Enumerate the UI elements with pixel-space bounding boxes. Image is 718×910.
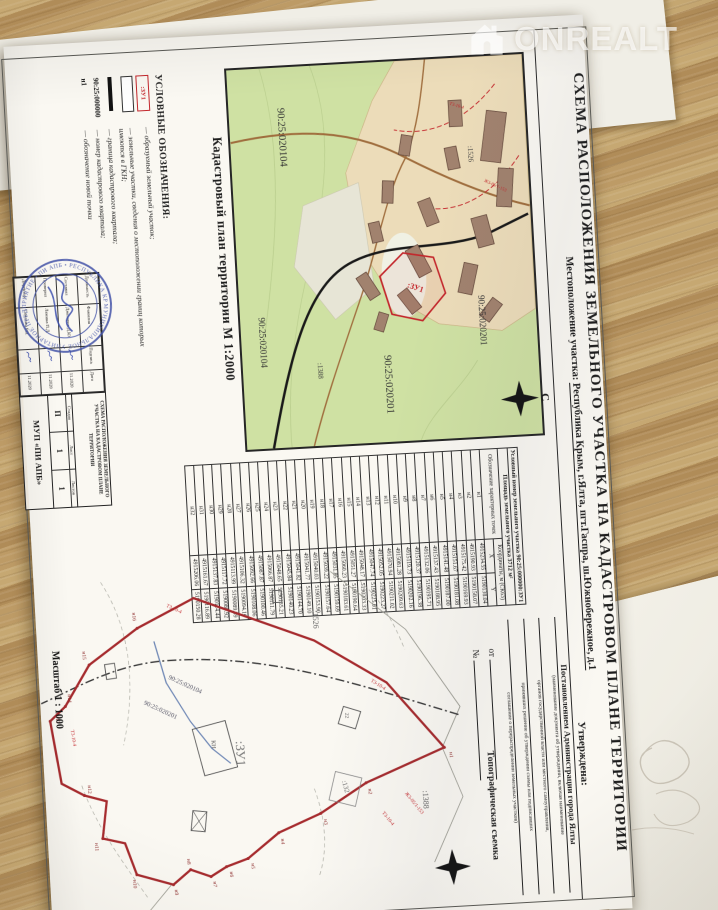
svg-text:н14: н14 (66, 694, 72, 703)
adjacent-parcel-lines (131, 564, 471, 910)
document: СХЕМА РАСПОЛОЖЕНИЯ ЗЕМЕЛЬНОГО УЧАСТКА НА… (0, 22, 637, 910)
parcel-symbol (120, 75, 135, 128)
building-22-label: 22 (343, 712, 349, 718)
svg-text:н12: н12 (86, 785, 92, 794)
house-icon (468, 21, 506, 57)
svg-text:н9: н9 (173, 889, 179, 895)
svg-text:С: С (539, 392, 551, 401)
svg-text:Т3-10-4: Т3-10-4 (69, 729, 77, 746)
photo-of-cadastral-document: СХЕМА РАСПОЛОЖЕНИЯ ЗЕМЕЛЬНОГО УЧАСТКА НА… (0, 0, 718, 910)
svg-text:н6: н6 (228, 871, 234, 877)
parcel-132-label: :132 (340, 779, 351, 794)
parcel-label: :ЗУ1 (233, 740, 249, 766)
north-star-icon (434, 848, 472, 886)
svg-text:н10: н10 (131, 879, 137, 888)
staff-date: 11.2020 (19, 373, 41, 396)
org-stamp: МУНИЦИПАЛЬНОЕ УНИТАРНОЕ ПРЕДПРИЯТИЕ • ПИ… (12, 253, 117, 358)
signature-scribble (47, 277, 73, 332)
topographic-map: н1 н2 н3 н4 н5 н6 н7 н8 н9 н10 н11 н12 н… (34, 550, 481, 910)
svg-text:н1: н1 (448, 751, 454, 757)
quarter-020201-label: 90:25:020201 (143, 699, 179, 721)
svg-text:н8: н8 (185, 858, 191, 864)
parcel-1526-label: :1526 (466, 145, 475, 162)
coord-y: 5190158.07 (468, 573, 479, 607)
title-block-title: СХЕМА РАСПОЛОЖЕНИЯ ЗЕМЕЛЬНОГО УЧАСТКА НА… (71, 392, 111, 506)
title-block-right: СХЕМА РАСПОЛОЖЕНИЯ ЗЕМЕЛЬНОГО УЧАСТКА НА… (20, 392, 111, 509)
svg-text:н3: н3 (322, 818, 328, 824)
column-header-x: X (484, 539, 495, 573)
svg-text:н5: н5 (249, 863, 255, 869)
quarter-number-symbol: 90:25:000000 (91, 77, 102, 129)
svg-text:н15: н15 (80, 651, 86, 660)
new-point-symbol: н1 (79, 78, 90, 130)
stage-value: П (48, 394, 67, 431)
watermark: ONREALT (468, 20, 678, 58)
cadastral-map: :ЗУ1 :1526 :1388 90:25:020104 90:25:0201… (224, 51, 545, 451)
quarter-boundary-symbol (107, 76, 114, 128)
coord-y: 5190138.04 (477, 572, 488, 606)
svg-text:н2: н2 (366, 788, 372, 794)
buildings (101, 586, 367, 837)
parcel-1388-label: :1388 (316, 362, 325, 379)
column-header-y: Y (486, 572, 497, 606)
sheet-value: 1 (50, 432, 69, 469)
from-label: от (487, 648, 497, 657)
svg-text:н11: н11 (93, 842, 99, 851)
quarter-boundary-line (39, 644, 458, 737)
stamp-ring-text: МУНИЦИПАЛЬНОЕ УНИТАРНОЕ ПРЕДПРИЯТИЕ • ПИ… (19, 253, 118, 351)
coord-x: 4915190.93 (466, 540, 477, 574)
svg-text:н4: н4 (279, 838, 285, 844)
north-compass-icon: С (498, 376, 554, 419)
svg-text:н7: н7 (211, 881, 217, 887)
svg-text:МУНИЦИПАЛЬНОЕ УНИТАРНОЕ ПРЕДПР: МУНИЦИПАЛЬНОЕ УНИТАРНОЕ ПРЕДПРИЯТИЕ • ПИ… (19, 253, 118, 351)
new-parcel-boundary (44, 584, 451, 890)
parcel-1388-label: :1388 (421, 790, 431, 809)
number-label: № (471, 649, 481, 658)
zone-labels: Т3-10-4 Ж3-05/1-153 Т3-10-4 Т3-10-4 Т3-1… (62, 590, 425, 845)
new-parcel-symbol: :ЗУ1 (135, 74, 151, 127)
sheets-value: 1 (52, 469, 71, 507)
building-kn-label: КН (209, 740, 215, 749)
svg-text:н16: н16 (130, 612, 136, 621)
document-sheet: СХЕМА РАСПОЛОЖЕНИЯ ЗЕМЕЛЬНОГО УЧАСТКА НА… (3, 15, 632, 910)
svg-text:Т3-10-4: Т3-10-4 (380, 811, 395, 827)
coord-x: 4915234.55 (475, 539, 486, 573)
boundary-point-labels: н1 н2 н3 н4 н5 н6 н7 н8 н9 н10 н11 н12 н… (48, 595, 460, 902)
stream-line (154, 637, 231, 767)
brand-text: ONREALT (514, 20, 678, 58)
staff-date: 11.2020 (61, 370, 83, 393)
parcel-1526-label: :1526 (310, 610, 320, 629)
scale-caption: Масштаб 1 : 1000 (49, 650, 64, 729)
staff-date: 11.2020 (40, 371, 62, 394)
